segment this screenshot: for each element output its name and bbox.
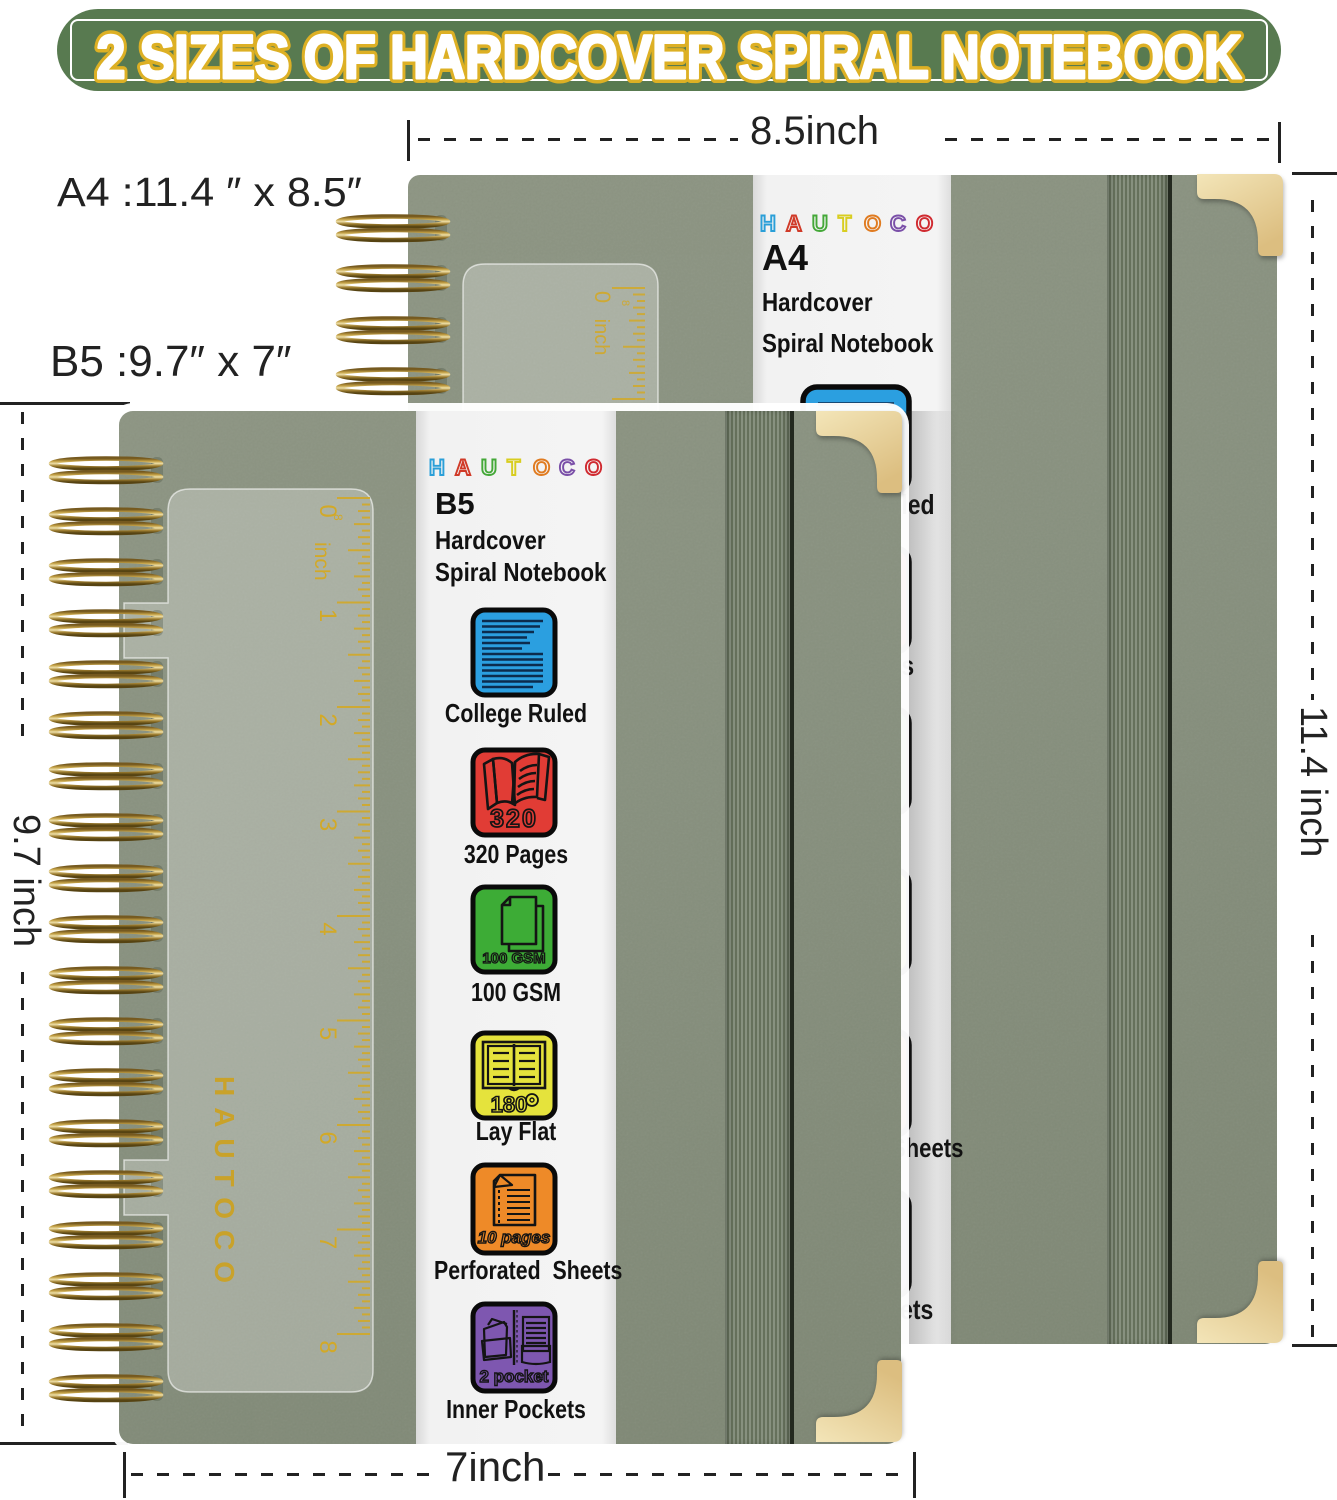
svg-text:2 pocket: 2 pocket (480, 1367, 549, 1386)
svg-text:A: A (786, 211, 802, 236)
svg-text:C: C (890, 211, 906, 236)
svg-text:U: U (812, 211, 828, 236)
svg-text:HAUTOCO: HAUTOCO (209, 1076, 240, 1294)
svg-text:H: H (760, 211, 776, 236)
svg-text:O: O (533, 455, 550, 480)
svg-text:O: O (916, 211, 933, 236)
svg-text:8: 8 (619, 300, 631, 306)
svg-text:inch: inch (590, 319, 612, 356)
svg-text:C: C (559, 455, 575, 480)
svg-text:2 SIZES OF HARDCOVER SPIRAL NO: 2 SIZES OF HARDCOVER SPIRAL NOTEBOOK (97, 23, 1242, 91)
svg-text:A: A (455, 455, 471, 480)
svg-text:O: O (585, 455, 602, 480)
svg-text:10 pages: 10 pages (478, 1228, 551, 1247)
svg-text:H: H (429, 455, 445, 480)
svg-text:T: T (507, 455, 521, 480)
svg-text:100 GSM: 100 GSM (482, 950, 545, 967)
svg-text:T: T (838, 211, 852, 236)
svg-text:320: 320 (490, 805, 538, 833)
svg-text:O: O (864, 211, 881, 236)
svg-text:U: U (481, 455, 497, 480)
svg-text:0: 0 (590, 291, 615, 303)
svg-text:180: 180 (491, 1092, 528, 1117)
